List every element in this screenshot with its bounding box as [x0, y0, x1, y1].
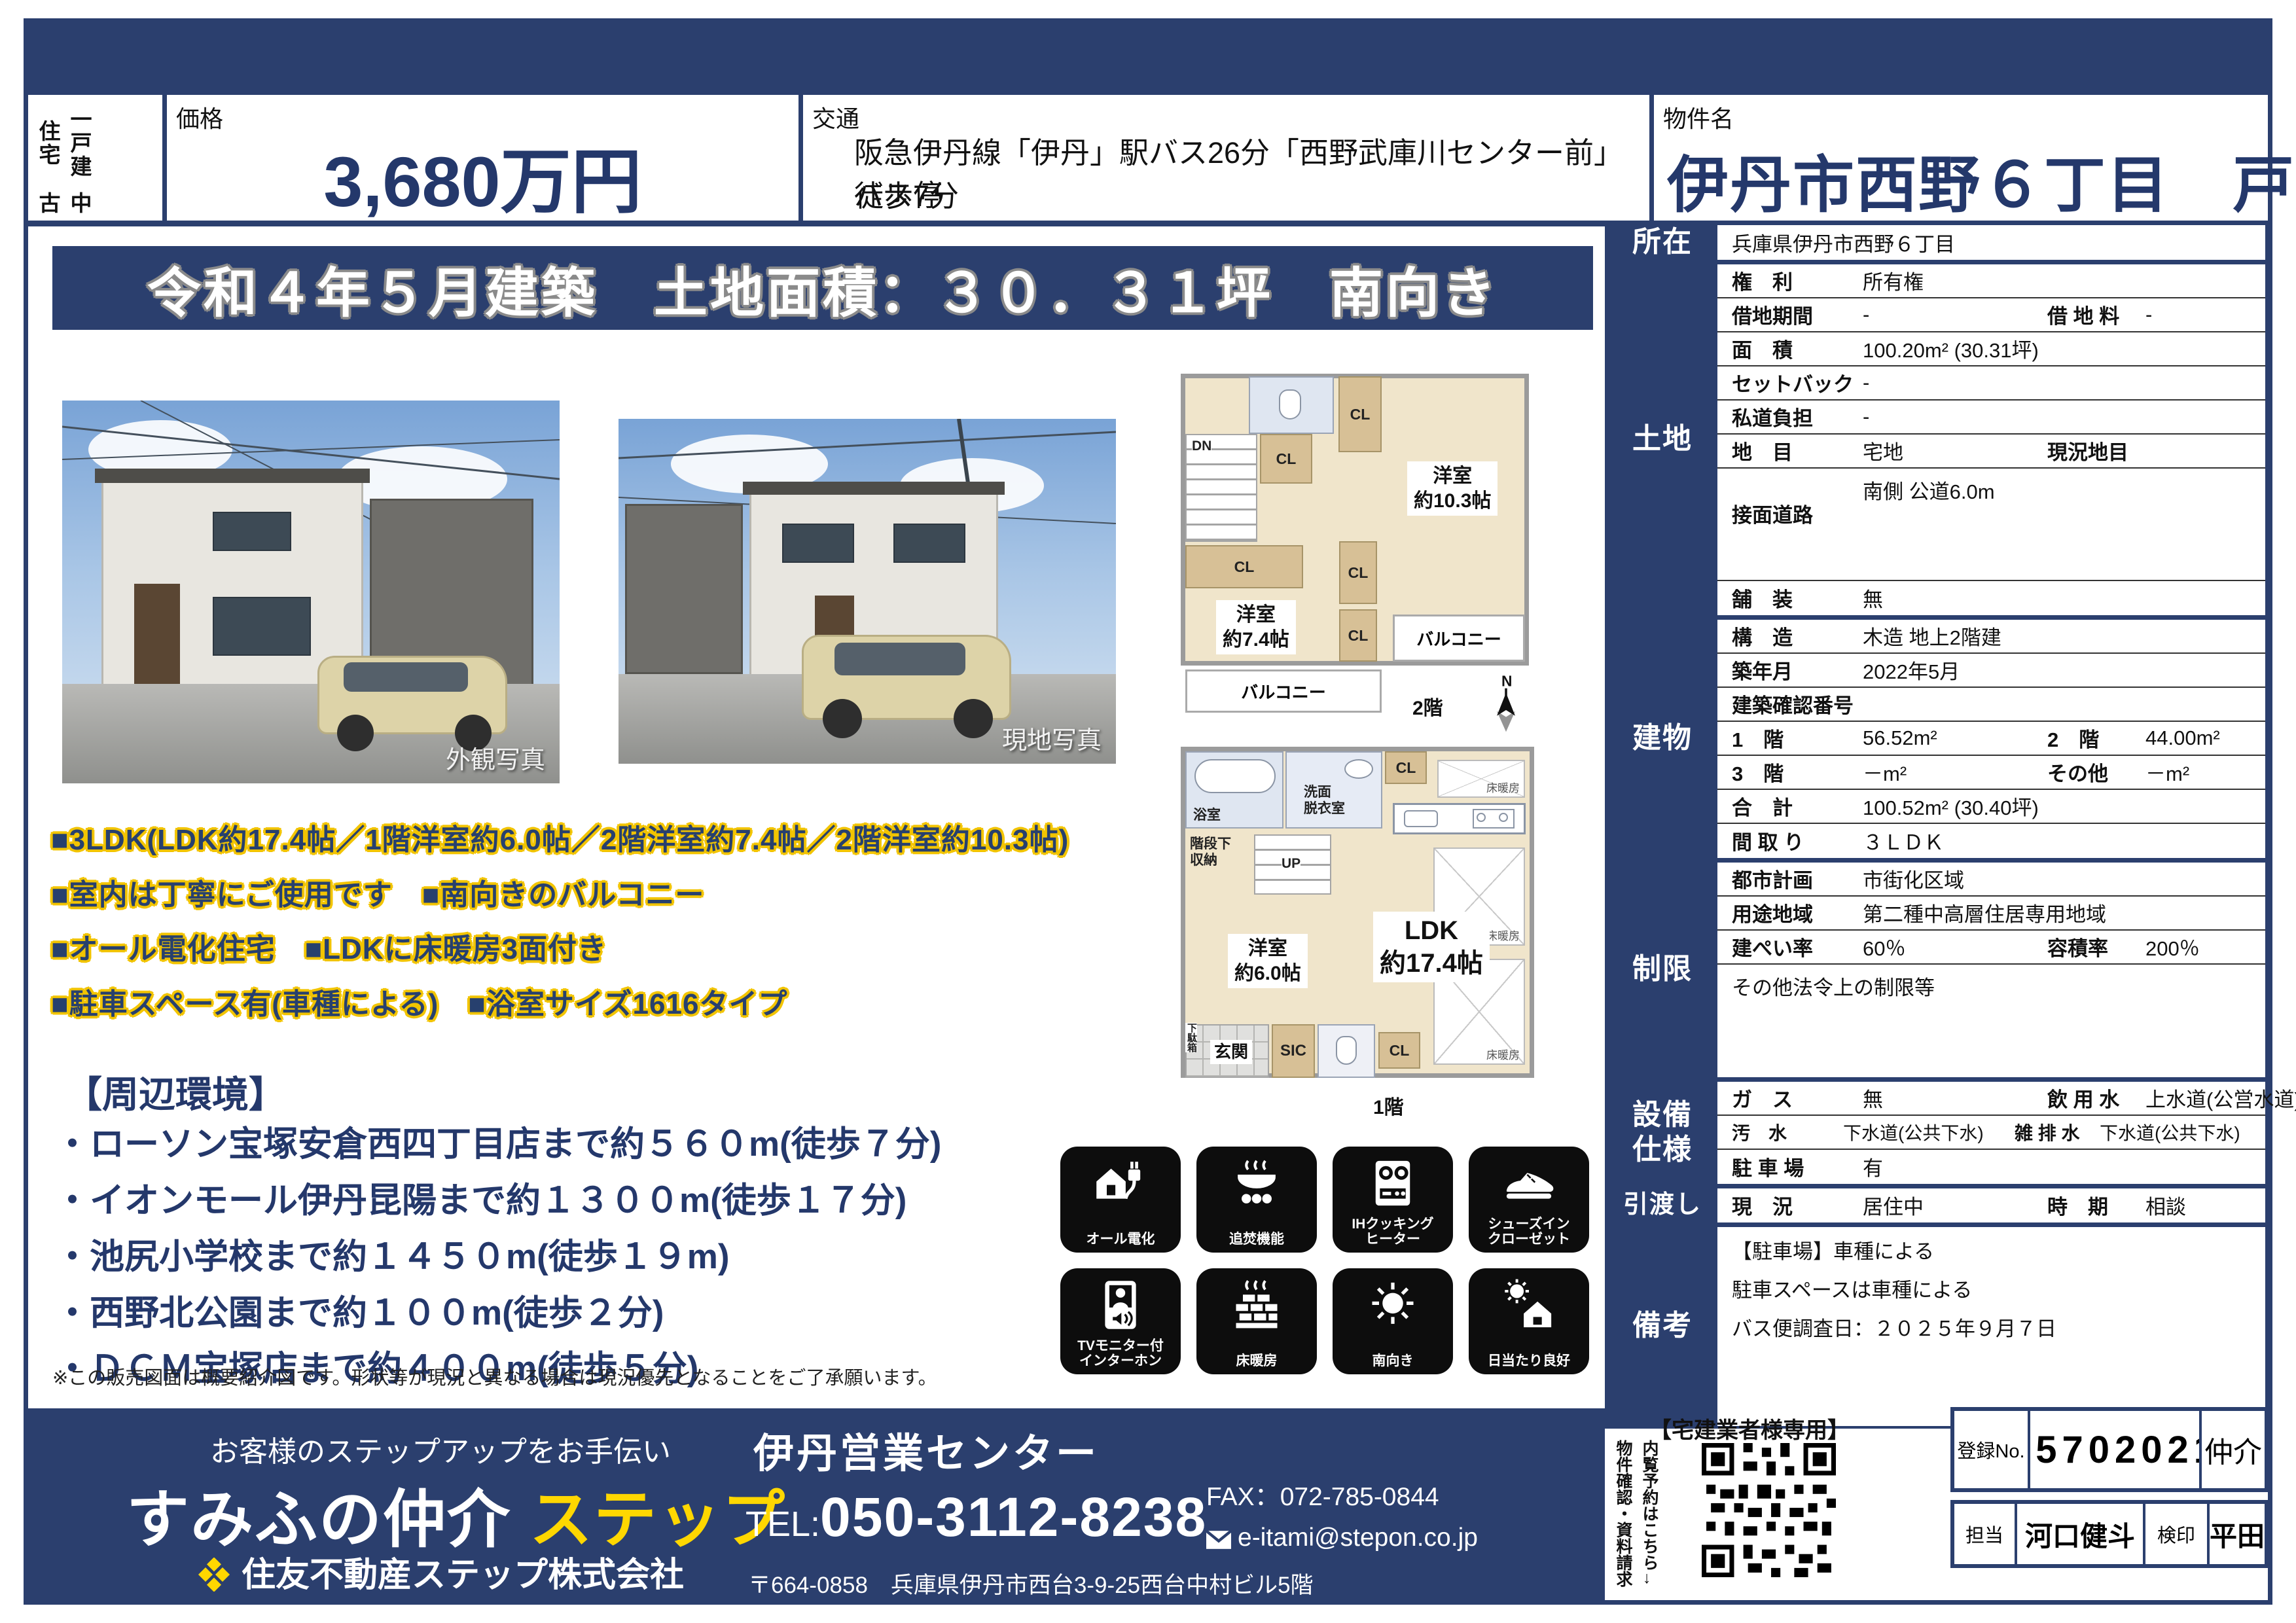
amenity-floor-heating: 床暖房 [1196, 1268, 1317, 1374]
amenity-shoes-closet: シューズイン クローゼット [1469, 1147, 1589, 1253]
gas: 無 [1863, 1083, 2047, 1113]
balcony: バルコニー [1185, 669, 1382, 713]
south-facing-icon [1365, 1277, 1420, 1332]
closet: CL [1260, 434, 1312, 484]
footer-panel: お客様のステップアップをお手伝い すみふの仲介ステップ 住友不動産ステップ株式会… [28, 1408, 1605, 1600]
entrance-label: 玄関 [1210, 1040, 1252, 1064]
closet: CL [1339, 541, 1377, 604]
amenity-reheating: 追焚機能 [1196, 1147, 1317, 1253]
group-label-utilities: 設備 仕様 [1607, 1082, 1717, 1184]
email-icon [1206, 1531, 1231, 1549]
floor-heating-icon [1229, 1277, 1284, 1332]
stairs-up: UP [1254, 834, 1331, 895]
floor3-area: －m² [1863, 757, 2047, 787]
pavement: 無 [1863, 583, 2265, 613]
floor-label-2f: 2階 [1412, 692, 1443, 721]
amenity-south-facing: 南向き [1333, 1268, 1453, 1374]
shoes-in-closet-room: SIC [1272, 1024, 1315, 1078]
site-photo: 現地写真 [619, 419, 1116, 764]
closet: CL [1378, 1032, 1420, 1069]
good-sunlight-icon [1501, 1277, 1556, 1332]
property-name: 伊丹市西野６丁目 戸建 [1667, 135, 2295, 224]
highlight-banner: 令和４年５月建築 土地面積：３０．３１坪 南向き [52, 246, 1593, 330]
kitchen-counter [1393, 803, 1526, 834]
property-name-cell: 物件名 伊丹市西野６丁目 戸建 [1654, 95, 2268, 221]
land-area: 100.20m² (30.31坪) [1863, 334, 2265, 363]
land-right: 所有権 [1863, 266, 2265, 295]
lease-term: - [1863, 303, 2047, 327]
other-legal: その他法令上の制限等 [1732, 971, 2265, 1001]
group-label-land: 土地 [1607, 264, 1717, 615]
property-name-label: 物件名 [1663, 100, 1734, 134]
frontage-road: 南側 公道6.0m [1863, 475, 2265, 505]
stamp-name: 平田 [2207, 1504, 2265, 1564]
stairs-dn-label: DN [1192, 438, 1211, 454]
surroundings-item: ・西野北公園まで約１００m(徒歩２分) [55, 1285, 941, 1342]
amenity-good-sunlight: 日当たり良好 [1469, 1268, 1589, 1374]
brand-logo: すみふの仲介ステップ [126, 1469, 755, 1560]
neighbor-house [625, 504, 743, 674]
closet: CL [1385, 751, 1427, 784]
surroundings-list: ・ローソン宝塚安倉西四丁目店まで約５６０m(徒歩７分) ・イオンモール伊丹昆陽ま… [55, 1116, 941, 1397]
washroom: 洗面 脱衣室 [1285, 751, 1382, 829]
private-road: - [1863, 405, 2265, 429]
office-address: 〒664-0858 兵庫県伊丹市西台3-9-25西台中村ビル5階 [748, 1567, 1314, 1600]
all-electric-icon [1093, 1156, 1148, 1211]
feature-line: ■室内は丁寧にご使用です ■南向きのバルコニー [51, 868, 1190, 923]
price-cell: 価格 3,680万円 [167, 95, 803, 221]
closet: CL [1185, 545, 1303, 588]
floorplan-2f: DN CL CL CL CL CL 洋室約10.3帖 洋室約7.4帖 バルコニー… [1177, 370, 1535, 736]
shoes-closet-icon [1501, 1156, 1556, 1211]
stairs-down: DN [1185, 434, 1257, 542]
brand-name: すみふの仲介 [126, 1485, 511, 1555]
category-cell: 一戸建住宅 中古 [28, 95, 167, 221]
brokerage-type: 仲介 [2199, 1411, 2265, 1488]
photo-caption: 外観写真 [446, 740, 545, 776]
sewage: 下水道(公共下水) [1843, 1119, 2015, 1145]
svg-text:N: N [1501, 672, 1512, 689]
access-line1: 阪急伊丹線「伊丹」駅バス26分「西野武庫川センター前」バス停 [854, 129, 1649, 214]
property-details-table: 所在 兵庫県伊丹市西野６丁目 土地 権 利所有権 借地期間-借 地 料- 面 積… [1605, 223, 2268, 1429]
bathroom: 浴室 [1185, 751, 1283, 829]
washroom-label: 洗面 脱衣室 [1304, 784, 1345, 817]
top-bar [28, 23, 2268, 95]
toilet-room-2f [1249, 376, 1334, 434]
floor-heating-panel: 床暖房 [1437, 760, 1525, 798]
parking: 有 [1863, 1152, 2265, 1181]
access-label: 交通 [812, 100, 859, 134]
footer-tagline: お客様のステップアップをお手伝い [126, 1428, 755, 1470]
banner-text: 令和４年５月建築 土地面積：３０．３１坪 南向き [147, 249, 1498, 327]
toilet-icon [1279, 389, 1301, 419]
drinking-water: 上水道(公営水道) [2145, 1083, 2265, 1113]
group-remarks: 備考 【駐車場】車種による 駐車スペースは車種による バス便調査日：２０２５年９… [1607, 1222, 2265, 1426]
room-label-2f-small: 洋室約7.4帖 [1216, 600, 1296, 654]
total-area: 100.52m² (30.40坪) [1863, 791, 2265, 821]
vertical-note: 物件確認・資料請求 [1611, 1440, 1635, 1597]
group-restrictions: 制限 都市計画市街化区域 用途地域第二種中高層住居専用地域 建ぺい率60％容積率… [1607, 858, 2265, 1077]
phone-number[interactable]: TEL:050-3112-8238 [745, 1486, 1207, 1549]
bath-label: 浴室 [1193, 807, 1221, 823]
entrance: 下駄箱 玄関 [1185, 1024, 1269, 1078]
feature-list: ■3LDK(LDK約17.4帖／1階洋室約6.0帖／2階洋室約7.4帖／2階洋室… [51, 813, 1190, 1031]
location-value: 兵庫県伊丹市西野６丁目 [1732, 228, 2265, 257]
delivery-time: 相談 [2145, 1190, 2265, 1220]
fax-number: FAX：072-785-0844 [1206, 1476, 1478, 1513]
remarks-line: 【駐車場】車種による [1732, 1235, 2056, 1264]
floorplan-1f: 浴室 洗面 脱衣室 CL 床暖房 床暖房 床暖房 階段下 収納 UP 洋室約6.… [1177, 743, 1541, 1119]
reg-no-label: 登録No. [1954, 1411, 2028, 1488]
category-type: 一戸建住宅 [32, 100, 95, 186]
floor-area-ratio: 200％ [2145, 932, 2265, 961]
stamp-label: 検印 [2143, 1504, 2207, 1564]
tv-interphone-icon [1093, 1277, 1148, 1332]
feature-line: ■駐車スペース有(車種による) ■浴室サイズ1616タイプ [51, 977, 1190, 1032]
exterior-photo: 外観写真 [62, 401, 560, 783]
vertical-notes: 内覧予約はこちら→ 物件確認・資料請求 [1609, 1440, 1664, 1597]
disclaimer-note: ※この販売図面は概要紹介図です。形状等が現況と異なる場合は現況優先となることをご… [52, 1363, 937, 1390]
group-label-location: 所在 [1607, 225, 1717, 260]
ih-cooking-icon [1365, 1156, 1420, 1211]
pro-only-heading: 【宅建業者様専用】 [1649, 1412, 1850, 1444]
flyer-page: 一戸建住宅 中古 価格 3,680万円 交通 阪急伊丹線「伊丹」駅バス26分「西… [0, 0, 2296, 1623]
remarks: 【駐車場】車種による 駐車スペースは車種による バス便調査日：２０２５年９月７日 [1732, 1235, 2056, 1342]
amenity-all-electric: オール電化 [1060, 1147, 1181, 1253]
closet: CL [1339, 609, 1377, 662]
remarks-line: バス便調査日：２０２５年９月７日 [1732, 1312, 2056, 1342]
group-label-delivery: 引渡し [1607, 1188, 1717, 1222]
access-line2: 徒歩7分 [854, 172, 959, 215]
floor1-area: 56.52m² [1863, 726, 2047, 750]
balcony: バルコニー [1393, 615, 1525, 662]
company-row: 住友不動産ステップ株式会社 [126, 1547, 755, 1596]
office-name: 伊丹営業センター [753, 1420, 1099, 1479]
agent-name: 河口健斗 [2015, 1504, 2143, 1564]
gray-water: 下水道(公共下水) [2100, 1119, 2265, 1145]
land-category: 宅地 [1863, 436, 2047, 465]
surroundings-item: ・ローソン宝塚安倉西四丁目店まで約５６０m(徒歩７分) [55, 1116, 941, 1173]
qr-code[interactable] [1702, 1443, 1836, 1577]
surroundings-item: ・イオンモール伊丹昆陽まで約１３００m(徒歩１７分) [55, 1173, 941, 1229]
current-status: 居住中 [1863, 1190, 2047, 1220]
room-label-2f-big: 洋室約10.3帖 [1407, 461, 1498, 516]
stairs-up-label: UP [1282, 855, 1300, 872]
group-utilities: 設備 仕様 ガ ス無飲 用 水上水道(公営水道) 汚 水下水道(公共下水)雑 排… [1607, 1077, 2265, 1184]
floor2-area: 44.00m² [2145, 726, 2265, 750]
group-building: 建物 構 造木造 地上2階建 築年月2022年5月 建築確認番号 1 階56.5… [1607, 615, 2265, 858]
category-used: 中古 [32, 186, 95, 221]
photo-caption: 現地写真 [1002, 720, 1102, 756]
group-land: 土地 権 利所有権 借地期間-借 地 料- 面 積100.20m² (30.31… [1607, 260, 2265, 615]
access-cell: 交通 阪急伊丹線「伊丹」駅バス26分「西野武庫川センター前」バス停 徒歩7分 [803, 95, 1654, 221]
coverage-ratio: 60％ [1863, 932, 2047, 961]
agent-label: 担当 [1954, 1504, 2015, 1564]
ldk-label: LDK約17.4帖 [1373, 912, 1490, 982]
company-name: 住友不動産ステップ株式会社 [242, 1556, 684, 1594]
price-value: 3,680万円 [167, 125, 798, 227]
group-location: 所在 兵庫県伊丹市西野６丁目 [1607, 225, 2265, 260]
feature-line: ■オール電化住宅 ■LDKに床暖房3面付き [51, 922, 1190, 977]
toilet-room-1f [1318, 1024, 1375, 1078]
group-label-remarks: 備考 [1607, 1227, 1717, 1426]
amenity-ih-cooking: IHクッキング ヒーター [1333, 1147, 1453, 1253]
setback: - [1863, 371, 2265, 395]
group-label-restrictions: 制限 [1607, 863, 1717, 1077]
registration-table: 登録No. 35702021 仲介 担当 河口健斗 検印 平田 B-2509-0… [1950, 1407, 2269, 1568]
group-label-building: 建物 [1607, 620, 1717, 858]
stair-storage-label: 階段下 収納 [1190, 836, 1231, 868]
feature-line: ■3LDK(LDK約17.4帖／1階洋室約6.0帖／2階洋室約7.4帖／2階洋室… [51, 813, 1190, 868]
layout: ３ＬＤＫ [1863, 826, 2265, 855]
surroundings-item: ・池尻小学校まで約１４５０m(徒歩１９m) [55, 1229, 941, 1285]
email-link[interactable]: e-itami@stepon.co.jp [1206, 1524, 1478, 1552]
amenity-tv-interphone: TVモニター付 インターホン [1060, 1268, 1181, 1374]
vertical-note: 内覧予約はこちら→ [1638, 1440, 1661, 1597]
company-logo-icon [197, 1558, 231, 1592]
group-delivery: 引渡し 現 況居住中時 期相談 [1607, 1184, 2265, 1222]
structure: 木造 地上2階建 [1863, 621, 2265, 651]
remarks-line: 駐車スペースは車種による [1732, 1274, 2056, 1303]
reheating-icon [1229, 1156, 1284, 1211]
built-date: 2022年5月 [1863, 655, 2265, 685]
amenity-grid: オール電化 追焚機能 IHクッキング ヒーター [1060, 1147, 1589, 1374]
compass-icon: N [1483, 672, 1529, 734]
zoning: 第二種中高層住居専用地域 [1863, 898, 2265, 927]
floor-label-1f: 1階 [1373, 1091, 1404, 1120]
header-row: 一戸建住宅 中古 価格 3,680万円 交通 阪急伊丹線「伊丹」駅バス26分「西… [28, 95, 2268, 221]
city-planning: 市街化区域 [1863, 864, 2265, 893]
closet: CL [1338, 376, 1382, 452]
surroundings-title: 【周辺環境】 [65, 1065, 285, 1118]
reg-no-value: 35702021 [2028, 1411, 2199, 1488]
room-label-1f: 洋室約6.0帖 [1228, 934, 1308, 988]
lease-fee: - [2145, 303, 2265, 327]
other-area: －m² [2145, 757, 2265, 787]
